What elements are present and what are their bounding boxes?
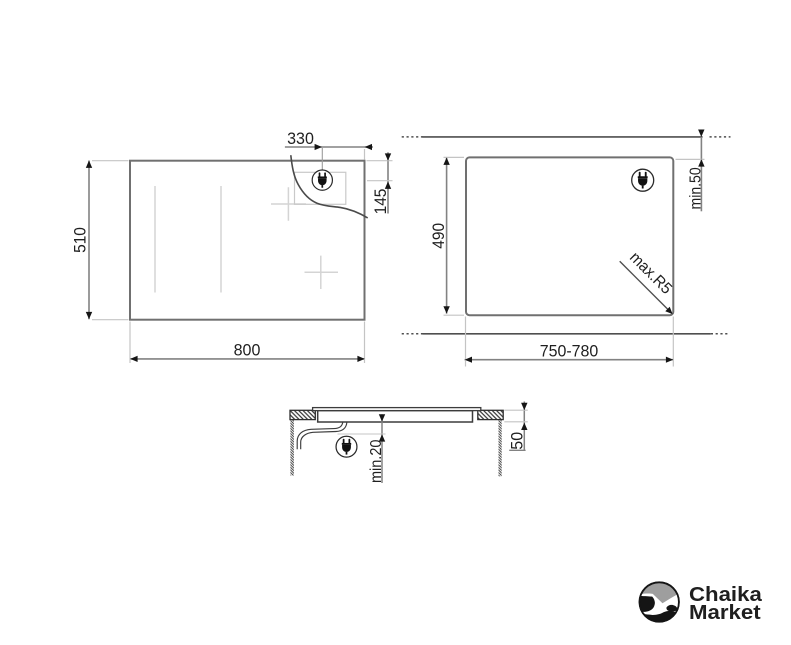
svg-text:330: 330 [287,129,314,148]
svg-text:750-780: 750-780 [540,342,599,361]
svg-text:145: 145 [371,189,390,215]
svg-text:min.50: min.50 [688,167,705,209]
svg-text:50: 50 [508,432,527,450]
svg-text:510: 510 [71,227,90,253]
svg-text:Market: Market [689,601,761,624]
svg-text:min.20: min.20 [368,439,385,483]
svg-text:800: 800 [234,340,261,359]
svg-text:490: 490 [429,223,448,249]
